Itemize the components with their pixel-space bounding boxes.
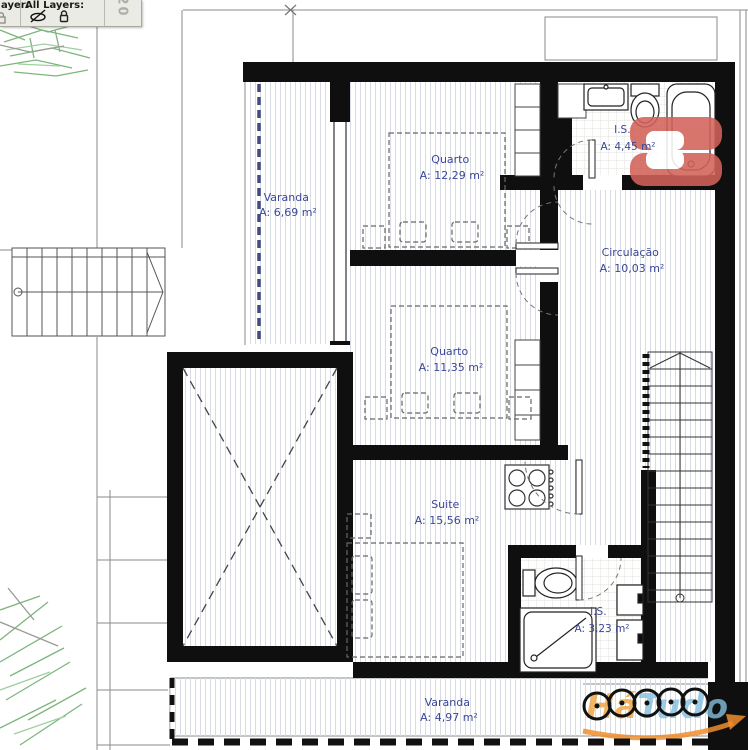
toolbar-separator: [104, 0, 105, 26]
floorplan-viewer: Varanda A: 6,69 m² Quarto A: 12,29 m² I.…: [0, 0, 748, 750]
tree-top-left: [0, 24, 90, 76]
layer-toolbar: ayer: All Layers: 20: [0, 0, 142, 27]
door-leaf-quarto1: [516, 243, 558, 249]
toolbar-separator: [20, 0, 21, 26]
exterior-stairs: [12, 248, 165, 336]
floorplan-drawing: Varanda A: 6,69 m² Quarto A: 12,29 m² I.…: [0, 0, 748, 750]
door-leaf-quarto2: [516, 268, 558, 274]
door-leaf-bath-bottom: [576, 556, 582, 600]
lock-icon[interactable]: [58, 9, 70, 26]
cooktop-icon: [505, 465, 553, 509]
sink-icon: [584, 84, 628, 110]
layer-count-badge: 20: [115, 0, 130, 26]
shower-icon: [520, 608, 596, 672]
door-leaf-bath-top: [589, 140, 595, 178]
half-lock-icon[interactable]: [0, 11, 7, 27]
window-glazing: [334, 122, 346, 341]
toilet-icon: [523, 568, 577, 598]
eye-slash-icon[interactable]: [28, 9, 48, 26]
tree-bottom-left: [0, 588, 86, 745]
door-leaf-suite: [576, 460, 582, 514]
